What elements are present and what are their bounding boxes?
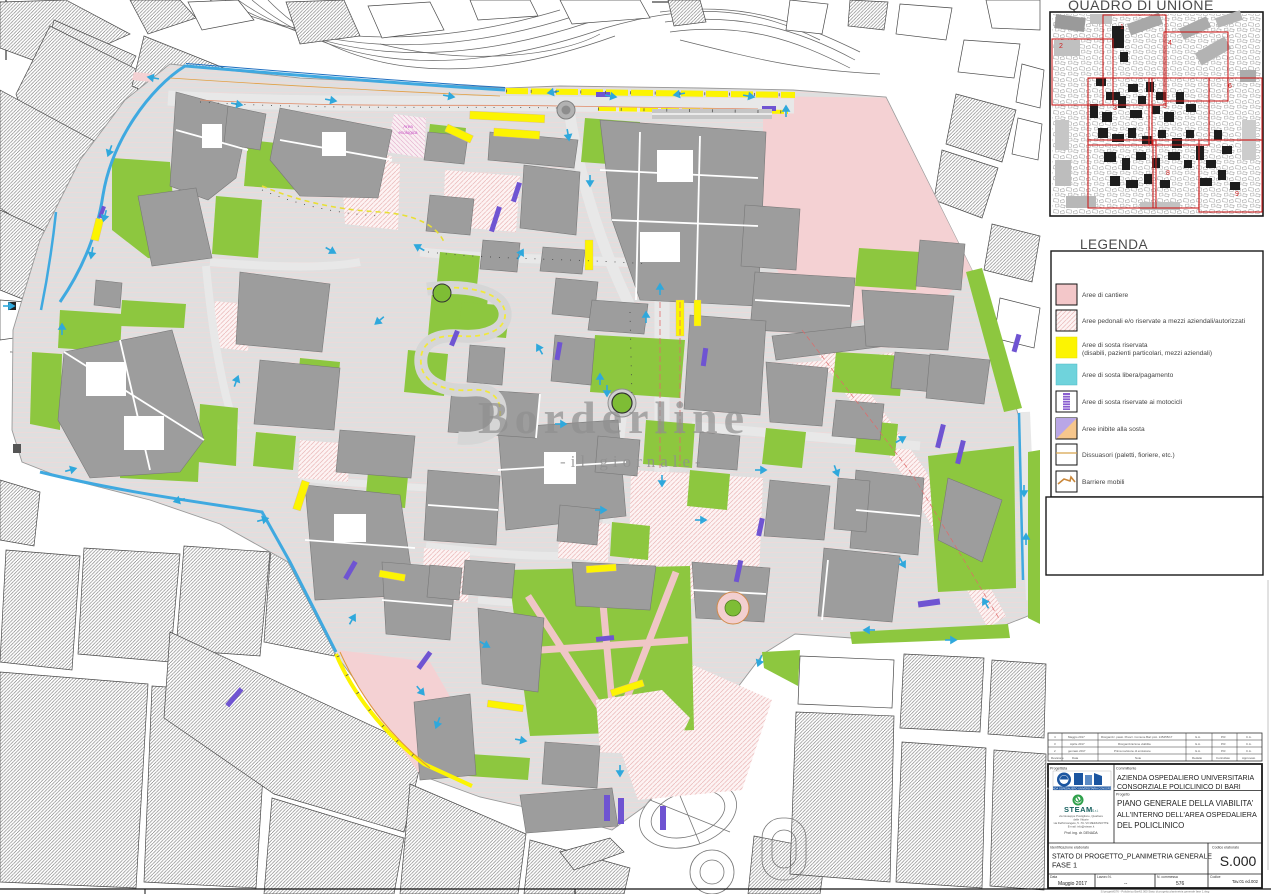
svg-text:Progettista: Progettista [1050,767,1067,771]
svg-text:C.A.: C.A. [1246,735,1252,739]
svg-text:STEAM: STEAM [1064,805,1093,814]
svg-text:Revisione: Revisione [1051,756,1064,760]
svg-text:G.A.: G.A. [1195,749,1201,753]
svg-text:S.r.l.: S.r.l. [1092,809,1098,813]
svg-text:Lavoro N.: Lavoro N. [1097,875,1112,879]
svg-text:Borderline: Borderline [478,392,750,443]
svg-text:6: 6 [1228,83,1232,90]
svg-text:Controllato: Controllato [1216,756,1230,760]
svg-text:5: 5 [1163,103,1167,110]
svg-text:Prima revisione di emissione: Prima revisione di emissione [1114,749,1151,753]
svg-text:576: 576 [1176,881,1185,887]
svg-text:C.A.: C.A. [1246,742,1252,746]
svg-text:CONSORZIALE POLICLINICO DI BAR: CONSORZIALE POLICLINICO DI BARI [1117,784,1241,791]
svg-text:G.A.: G.A. [1195,735,1201,739]
svg-text:Identificazione elaborato: Identificazione elaborato [1050,846,1089,850]
svg-text:Progetto: Progetto [1116,793,1130,797]
svg-text:Area: Area [403,124,413,129]
svg-text:AZIENDA OSPEDALIERO UNIVERSITA: AZIENDA OSPEDALIERO UNIVERSITARIA CONSOR… [1047,786,1117,790]
svg-text:Approvato: Approvato [1242,756,1256,760]
svg-text:ALL'INTERNO DELL'AREA OSPEDALI: ALL'INTERNO DELL'AREA OSPEDALIERA [1117,810,1257,819]
svg-text:Aprile 2017: Aprile 2017 [1070,742,1085,746]
svg-text:DEL POLICLINICO: DEL POLICLINICO [1117,821,1184,830]
svg-text:Barriere mobili: Barriere mobili [1082,479,1125,486]
svg-text:gennaio 2017: gennaio 2017 [1068,749,1086,753]
svg-text:Aree di cantiere: Aree di cantiere [1082,292,1129,299]
svg-text:Maggio 2017: Maggio 2017 [1058,881,1087,887]
svg-text:E-mail: info@steam.it: E-mail: info@steam.it [1068,825,1095,829]
svg-text:Aree di sosta libera/pagamento: Aree di sosta libera/pagamento [1082,372,1174,379]
svg-text:-il giornale-: -il giornale- [560,452,706,471]
svg-text:P.R.: P.R. [1221,735,1226,739]
svg-text:Aree di sosta riservata: Aree di sosta riservata [1082,342,1148,349]
svg-text:QUADRO DI UNIONE: QUADRO DI UNIONE [1068,0,1214,13]
svg-text:AZIENDA OSPEDALIERO UNIVERSITA: AZIENDA OSPEDALIERO UNIVERSITARIA [1117,775,1255,782]
svg-text:Riorganizz. passi. Prescr. Com: Riorganizz. passi. Prescr. Comune Bari p… [1101,735,1173,739]
svg-text:Aree pedonali e/o riservate a: Aree pedonali e/o riservate a mezzi azie… [1082,318,1246,325]
svg-text:FASE 1: FASE 1 [1052,861,1077,870]
svg-text:3: 3 [1113,105,1117,112]
svg-text:(disabili, pazienti particolar: (disabili, pazienti particolari, mezzi a… [1082,350,1212,357]
svg-text:N. commessa: N. commessa [1157,875,1178,879]
svg-text:P.R.: P.R. [1221,749,1226,753]
svg-text:1: 1 [1120,24,1124,31]
svg-text:Riorganizzazione viabilita: Riorganizzazione viabilita [1118,742,1151,746]
svg-text:Data: Data [1050,875,1057,879]
svg-text:9: 9 [1235,191,1239,198]
svg-text:Aree di sosta riservate ai mot: Aree di sosta riservate ai motocicli [1082,399,1183,406]
svg-text:Data: Data [1072,756,1078,760]
svg-text:S.000: S.000 [1220,853,1257,869]
svg-text:Maggio 2017: Maggio 2017 [1068,735,1085,739]
svg-text:Prof. ing. dr. DENADA: Prof. ing. dr. DENADA [1064,831,1098,835]
svg-text:Redatto: Redatto [1192,756,1203,760]
svg-text:Codice elaborato: Codice elaborato [1212,846,1239,850]
svg-text:LEGENDA: LEGENDA [1080,237,1148,252]
svg-text:--: -- [1124,881,1128,887]
svg-text:Codice: Codice [1210,875,1221,879]
svg-text:8: 8 [1166,170,1170,177]
svg-text:Committente: Committente [1116,767,1136,771]
svg-text:S:\progetti\576 - Policlinico: S:\progetti\576 - Policlinico Bari\S.000… [1101,890,1210,894]
svg-text:PIANO GENERALE DELLA VIABILITA: PIANO GENERALE DELLA VIABILITA' [1117,799,1254,808]
svg-text:Aree inibite alla sosta: Aree inibite alla sosta [1082,426,1145,433]
svg-text:4: 4 [1168,40,1172,47]
svg-text:STATO DI PROGETTO_PLANIMETRIA: STATO DI PROGETTO_PLANIMETRIA GENERALE [1052,854,1212,861]
svg-text:Tav.01 ed.002: Tav.01 ed.002 [1232,879,1259,884]
svg-text:G.A.: G.A. [1195,742,1201,746]
svg-text:C.A.: C.A. [1246,749,1252,753]
svg-text:Note: Note [1135,756,1141,760]
svg-text:P.R.: P.R. [1221,742,1226,746]
svg-text:Dissuasori (paletti, fioriere,: Dissuasori (paletti, fioriere, etc.) [1082,452,1175,459]
svg-text:2: 2 [1059,43,1063,50]
svg-text:ecologica: ecologica [398,130,418,135]
